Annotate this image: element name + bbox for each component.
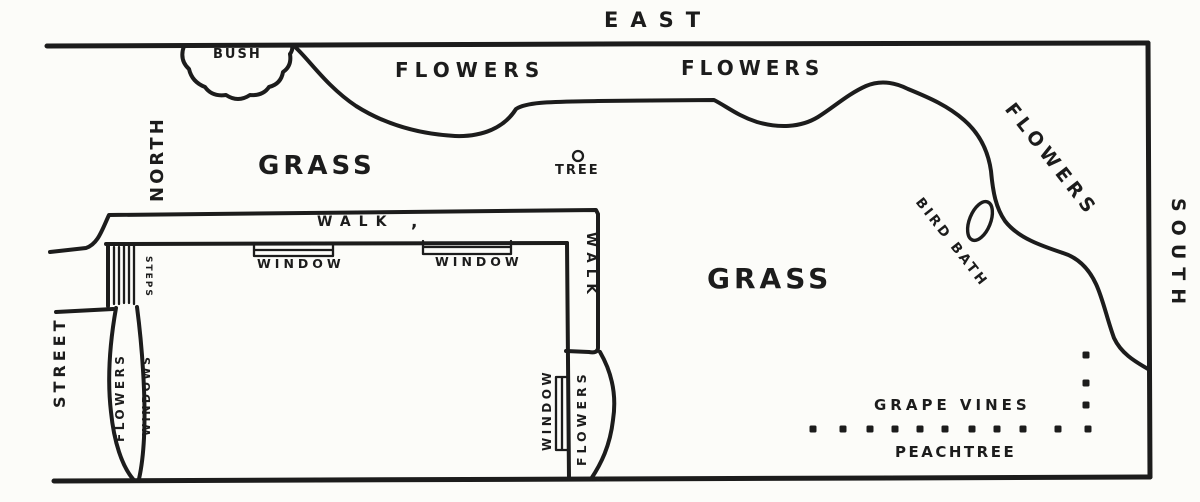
flowers-top-left-label: FLOWERS [395, 60, 545, 80]
border-right [1148, 43, 1150, 477]
walk-comma-mark: , [411, 214, 417, 231]
walk-east-label: WALK [584, 232, 598, 300]
window-east-label: WINDOW [541, 369, 553, 451]
peach-tree-label: PEACHTREE [895, 445, 1016, 460]
bush-label: BUSH [213, 48, 262, 61]
steps-label: STEPS [143, 256, 152, 298]
compass-south-label: SOUTH [1168, 198, 1187, 312]
flower-bed-edge [294, 46, 1148, 369]
window-east-symbol [556, 377, 568, 450]
yard-plan-sketch: EAST NORTH SOUTH STREET BUSH FLOWERS FLO… [0, 0, 1200, 502]
east-flower-bed-edge [591, 352, 614, 479]
bird-bath-symbol [963, 198, 998, 244]
house-east-wall [567, 243, 569, 479]
walk-top-label: WALK [317, 215, 394, 229]
house-north-wall [106, 243, 567, 244]
steps-hatch [108, 246, 134, 306]
tree-symbol [573, 151, 583, 161]
grass-northwest-label: GRASS [258, 153, 376, 179]
flowers-top-right-label: FLOWERS [681, 58, 824, 78]
compass-north-label: NORTH [149, 116, 167, 202]
tree-label: TREE [555, 164, 600, 177]
walk-outline [50, 210, 598, 352]
flowers-by-street-label: FLOWERS [114, 353, 126, 442]
grass-center-label: GRASS [707, 265, 832, 293]
plan-linework [0, 0, 1200, 502]
windows-west-label: WINDOWS [141, 355, 152, 436]
grape-vine-dots [810, 352, 1092, 433]
border-top [47, 43, 1148, 46]
border-bottom [54, 477, 1150, 481]
street-label: STREET [52, 316, 68, 408]
street-walk-stub [56, 309, 113, 312]
window-north-left-label: WINDOW [257, 258, 345, 271]
window-north-right-label: WINDOW [435, 256, 523, 269]
flowers-southeast-label: FLOWERS [576, 370, 589, 466]
grape-vines-label: GRAPE VINES [874, 398, 1031, 413]
compass-east-label: EAST [604, 10, 712, 31]
